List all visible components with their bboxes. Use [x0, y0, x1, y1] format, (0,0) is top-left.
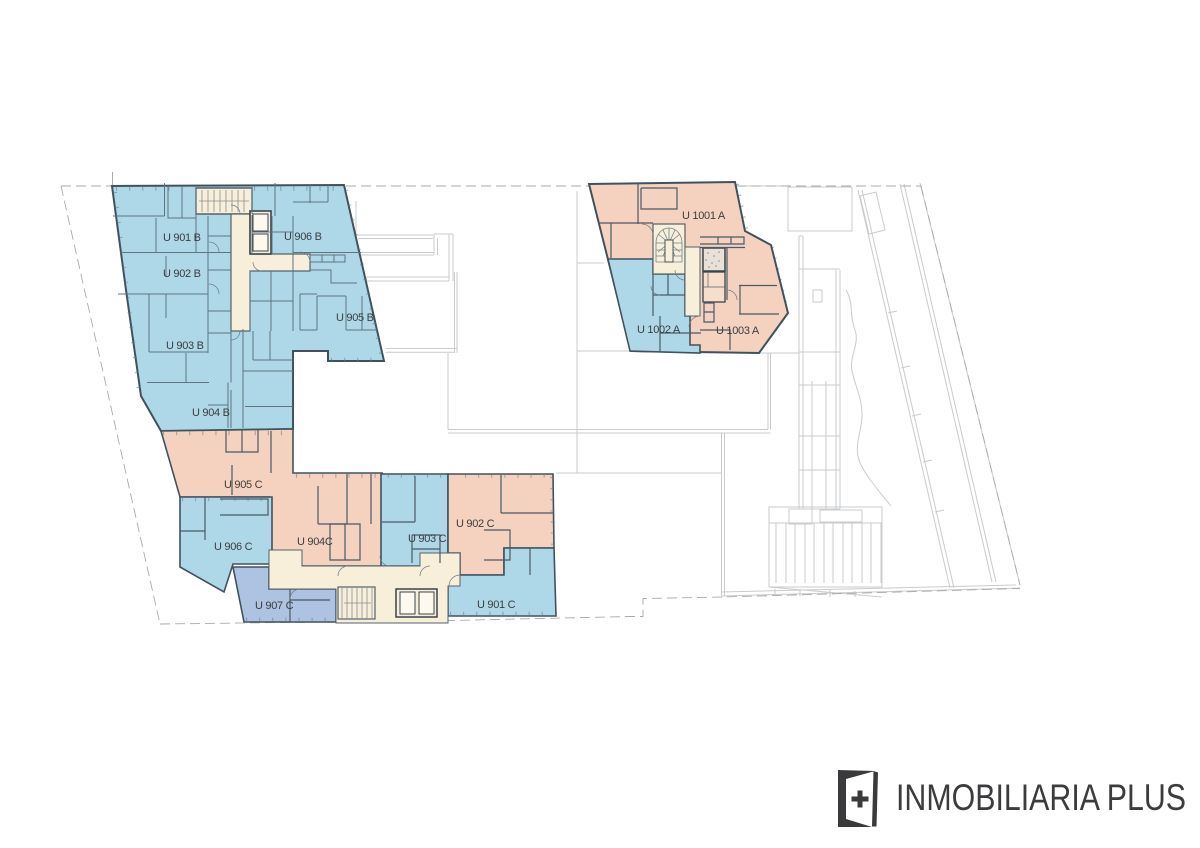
svg-text:U 906 B: U 906 B [284, 231, 322, 243]
svg-text:U 1002 A: U 1002 A [637, 324, 681, 336]
svg-text:U 904C: U 904C [297, 536, 333, 548]
svg-text:U 902 B: U 902 B [163, 268, 201, 280]
svg-text:U 904 B: U 904 B [192, 407, 230, 419]
svg-text:U 905 B: U 905 B [336, 312, 374, 324]
svg-text:U 901 C: U 901 C [477, 599, 516, 611]
svg-text:U 1003 A: U 1003 A [716, 325, 760, 337]
svg-text:U 905 C: U 905 C [224, 479, 263, 491]
svg-text:U 1001 A: U 1001 A [682, 210, 726, 222]
svg-text:U 902 C: U 902 C [456, 518, 495, 530]
svg-text:U 906 C: U 906 C [214, 541, 253, 553]
svg-text:U 901 B: U 901 B [163, 232, 201, 244]
svg-text:U 903 C: U 903 C [408, 533, 447, 545]
svg-text:U 903 B: U 903 B [166, 340, 204, 352]
svg-text:INMOBILIARIA PLUS: INMOBILIARIA PLUS [896, 777, 1186, 818]
svg-text:U 907 C: U 907 C [255, 600, 294, 612]
